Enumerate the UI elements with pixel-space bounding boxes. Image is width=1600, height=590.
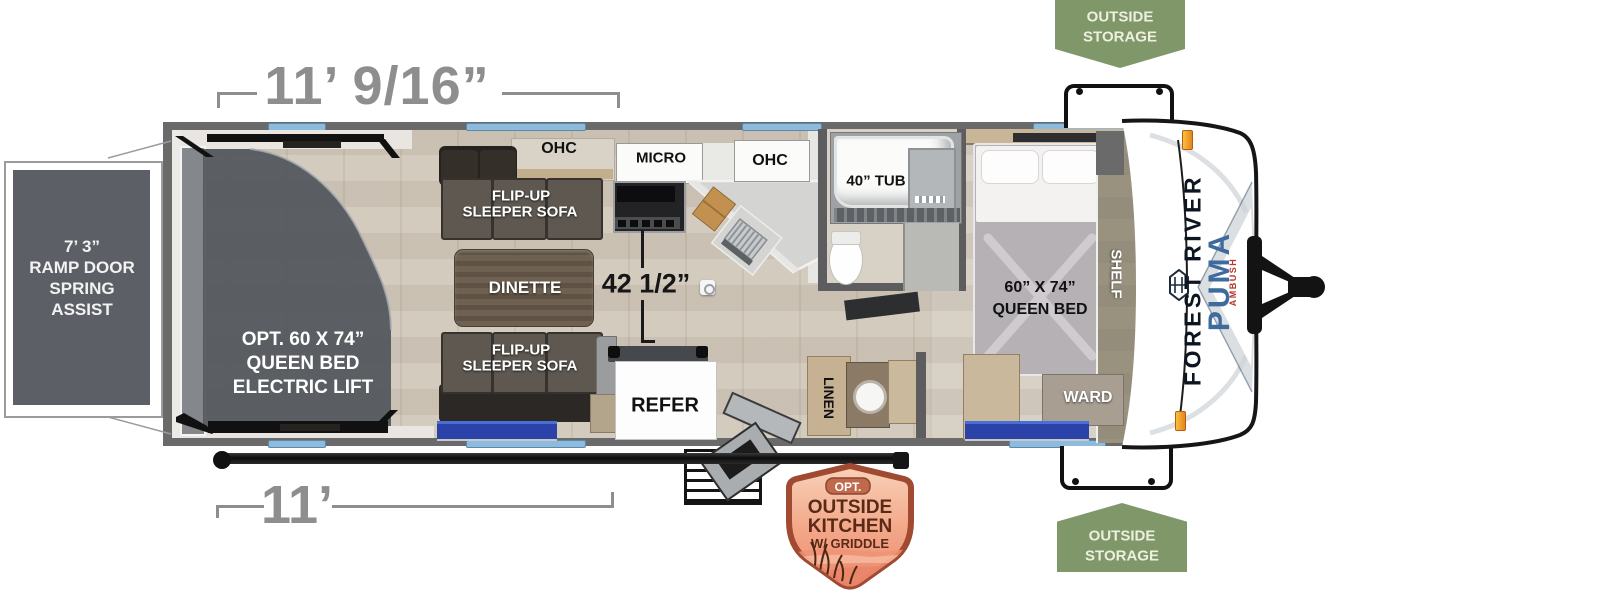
svg-text:OUTSIDE: OUTSIDE [808, 497, 892, 518]
svg-text:KITCHEN: KITCHEN [808, 516, 892, 537]
svg-text:OPT.: OPT. [835, 480, 862, 494]
svg-text:W/ GRIDDLE: W/ GRIDDLE [811, 536, 889, 551]
